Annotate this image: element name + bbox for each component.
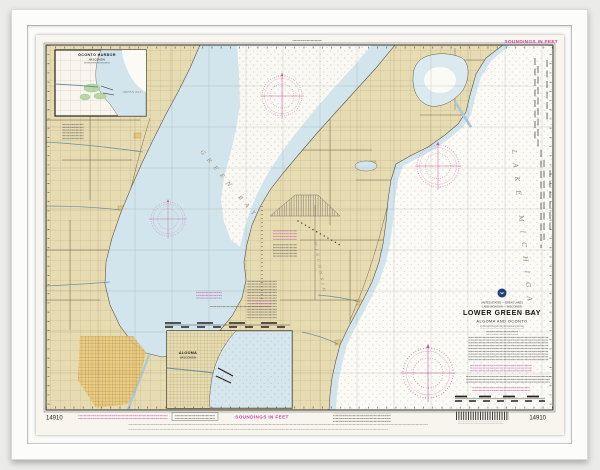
region-line: LAKE MICHIGAN — WISCONSIN — [482, 305, 521, 309]
soundings-note-top: SOUNDINGS IN FEET — [504, 39, 558, 44]
margin-box-text — [175, 415, 215, 420]
sturgeon-bay-deep — [424, 67, 456, 93]
chart-body: LAKE MICHIGAN GREEN BAY WISCONSIN UNITED… — [41, 45, 553, 410]
edition-note-magenta — [78, 414, 168, 420]
magenta-note-1 — [470, 364, 532, 372]
chart-subtitle: ALGOMA AND OCONTO — [476, 320, 527, 324]
notes-paragraph-1 — [468, 336, 548, 362]
barcode — [455, 412, 509, 421]
bottom-center-note — [333, 413, 391, 422]
chart-title: LOWER GREEN BAY — [463, 310, 541, 317]
inset-oconto-subtitle: WISCONSIN — [89, 58, 105, 62]
chart-number-left: 14910 — [46, 416, 63, 422]
chart-graphic: LAKE MICHIGAN GREEN BAY WISCONSIN UNITED… — [36, 35, 564, 435]
projection-lines — [486, 330, 518, 335]
inset-algoma-title: ALGOMA — [179, 351, 197, 355]
inset-algoma-subtitle: WISCONSIN — [180, 356, 196, 360]
footnote-line-2 — [128, 428, 388, 430]
nation-line: UNITED STATES — GREAT LAKES — [481, 301, 523, 305]
framed-nautical-chart: LAKE MICHIGAN GREEN BAY WISCONSIN UNITED… — [0, 0, 600, 470]
inset-oconto-water-label: GREEN BAY — [123, 90, 143, 94]
chart-number-right: 14910 — [529, 416, 546, 422]
notes-paragraph-2 — [466, 374, 550, 384]
noaa-logo-icon — [498, 289, 507, 298]
inset-oconto-harbor: OCONTO HARBOR WISCONSIN GREEN BAY — [55, 50, 146, 116]
soundings-note-bottom: SOUNDINGS IN FEET — [235, 415, 289, 420]
footnote-line-1 — [128, 424, 428, 426]
inset-algoma-scale-caption — [210, 306, 270, 309]
top-margin-note — [292, 39, 322, 42]
inset-oconto-scale — [84, 63, 110, 65]
chart-paper: LAKE MICHIGAN GREEN BAY WISCONSIN UNITED… — [36, 35, 564, 435]
little-sturgeon-bay — [355, 161, 377, 171]
scale-lines — [480, 326, 524, 329]
barcode-caption — [458, 422, 504, 424]
magenta-note-2 — [472, 386, 530, 393]
inset-oconto-title: OCONTO HARBOR — [78, 53, 116, 57]
